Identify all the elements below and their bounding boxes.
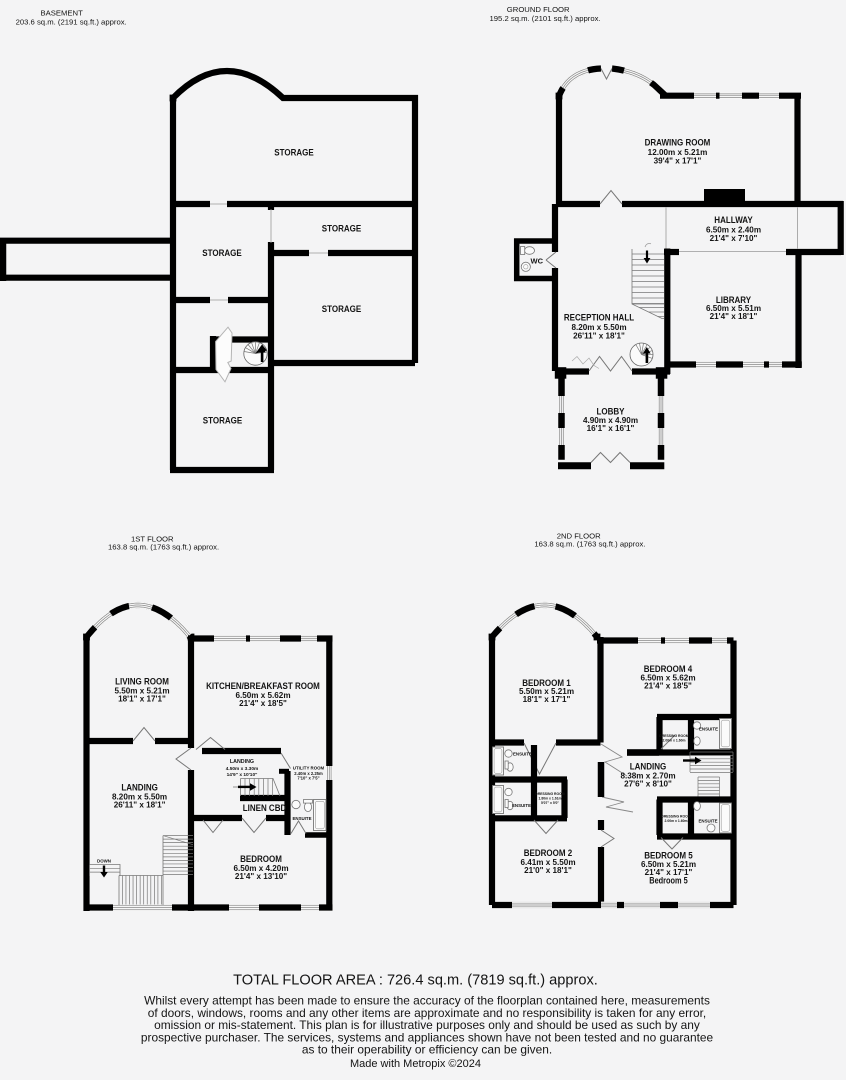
svg-text:LIVING ROOM: LIVING ROOM bbox=[115, 677, 169, 687]
svg-text:18'1" x 17'1": 18'1" x 17'1" bbox=[118, 695, 166, 704]
svg-text:Made with Metropix ©2024: Made with Metropix ©2024 bbox=[350, 1058, 481, 1070]
svg-text:DRESSING ROOM: DRESSING ROOM bbox=[535, 792, 564, 796]
svg-text:HALLWAY: HALLWAY bbox=[714, 215, 752, 225]
svg-text:BEDROOM 5: BEDROOM 5 bbox=[644, 851, 693, 861]
svg-text:BEDROOM 4: BEDROOM 4 bbox=[644, 664, 693, 674]
svg-text:as to their operability or eff: as to their operability or efficiency ca… bbox=[302, 1043, 552, 1057]
svg-text:WC: WC bbox=[531, 256, 544, 265]
svg-text:2.00m x 1.60m: 2.00m x 1.60m bbox=[663, 739, 686, 743]
svg-text:18'1" x 17'1": 18'1" x 17'1" bbox=[523, 695, 571, 704]
svg-text:LINEN CBD: LINEN CBD bbox=[243, 803, 287, 813]
svg-text:ENSUITE: ENSUITE bbox=[513, 752, 532, 757]
svg-text:DRESSING ROOM: DRESSING ROOM bbox=[659, 734, 688, 738]
svg-text:163.8 sq.m. (1763 sq.ft.) appr: 163.8 sq.m. (1763 sq.ft.) approx. bbox=[534, 539, 645, 548]
svg-text:BEDROOM: BEDROOM bbox=[240, 854, 282, 864]
svg-text:BEDROOM 2: BEDROOM 2 bbox=[524, 848, 573, 858]
svg-text:STORAGE: STORAGE bbox=[274, 148, 313, 158]
svg-text:RECEPTION HALL: RECEPTION HALL bbox=[564, 313, 635, 323]
svg-text:16'1" x 16'1": 16'1" x 16'1" bbox=[587, 424, 635, 433]
svg-text:DOWN: DOWN bbox=[97, 859, 111, 864]
svg-text:DRAWING ROOM: DRAWING ROOM bbox=[645, 138, 711, 148]
svg-text:27'6" x 8'10": 27'6" x 8'10" bbox=[624, 779, 672, 788]
svg-text:26'11" x 18'1": 26'11" x 18'1" bbox=[573, 332, 625, 341]
svg-text:195.2 sq.m. (2101 sq.ft.) appr: 195.2 sq.m. (2101 sq.ft.) approx. bbox=[490, 14, 601, 23]
svg-text:ENSUITE: ENSUITE bbox=[292, 816, 311, 821]
svg-text:STORAGE: STORAGE bbox=[322, 224, 361, 234]
svg-text:LANDING: LANDING bbox=[121, 782, 158, 792]
svg-text:21'4" x 18'5": 21'4" x 18'5" bbox=[644, 682, 692, 691]
svg-text:7'10" x 7'5": 7'10" x 7'5" bbox=[297, 776, 319, 781]
svg-text:39'4" x 17'1": 39'4" x 17'1" bbox=[654, 157, 702, 166]
svg-text:21'4" x 18'1": 21'4" x 18'1" bbox=[710, 312, 758, 321]
svg-text:TOTAL FLOOR AREA : 726.4 sq.m.: TOTAL FLOOR AREA : 726.4 sq.m. (7819 sq.… bbox=[233, 973, 598, 989]
svg-text:2.00m x 1.60m: 2.00m x 1.60m bbox=[665, 819, 688, 823]
svg-text:BASEMENT: BASEMENT bbox=[41, 9, 84, 18]
svg-text:STORAGE: STORAGE bbox=[203, 416, 242, 426]
svg-text:STORAGE: STORAGE bbox=[322, 304, 361, 314]
svg-text:LANDING: LANDING bbox=[630, 762, 667, 772]
svg-text:163.8 sq.m. (1763 sq.ft.) appr: 163.8 sq.m. (1763 sq.ft.) approx. bbox=[108, 542, 219, 551]
svg-text:LANDING: LANDING bbox=[230, 759, 254, 765]
svg-text:STORAGE: STORAGE bbox=[202, 248, 241, 258]
svg-text:ENSUITE: ENSUITE bbox=[512, 803, 531, 808]
svg-text:21'4" x 7'10": 21'4" x 7'10" bbox=[710, 234, 758, 243]
svg-text:Bedroom 5: Bedroom 5 bbox=[649, 875, 688, 885]
svg-text:5'07" x 5'0": 5'07" x 5'0" bbox=[541, 801, 559, 805]
svg-text:DRESSING ROOM: DRESSING ROOM bbox=[661, 815, 690, 819]
svg-text:21'0" x 18'1": 21'0" x 18'1" bbox=[524, 866, 572, 875]
svg-text:ENSUITE: ENSUITE bbox=[699, 727, 718, 732]
svg-text:ENSUITE: ENSUITE bbox=[698, 819, 717, 824]
svg-text:21'4" x 13'10": 21'4" x 13'10" bbox=[235, 872, 287, 881]
svg-text:LOBBY: LOBBY bbox=[597, 407, 625, 417]
svg-text:GROUND FLOOR: GROUND FLOOR bbox=[507, 5, 570, 14]
svg-text:14'9" x 10'10": 14'9" x 10'10" bbox=[227, 772, 258, 778]
svg-text:UTILITY ROOM: UTILITY ROOM bbox=[293, 766, 325, 771]
svg-text:21'4" x 18'5": 21'4" x 18'5" bbox=[239, 699, 287, 708]
svg-text:203.6 sq.m. (2191 sq.ft.) appr: 203.6 sq.m. (2191 sq.ft.) approx. bbox=[16, 18, 127, 27]
svg-text:KITCHEN/BREAKFAST ROOM: KITCHEN/BREAKFAST ROOM bbox=[206, 681, 320, 691]
svg-text:4.50m x 3.30m: 4.50m x 3.30m bbox=[226, 766, 259, 772]
svg-text:26'11" x 18'1": 26'11" x 18'1" bbox=[114, 800, 166, 809]
